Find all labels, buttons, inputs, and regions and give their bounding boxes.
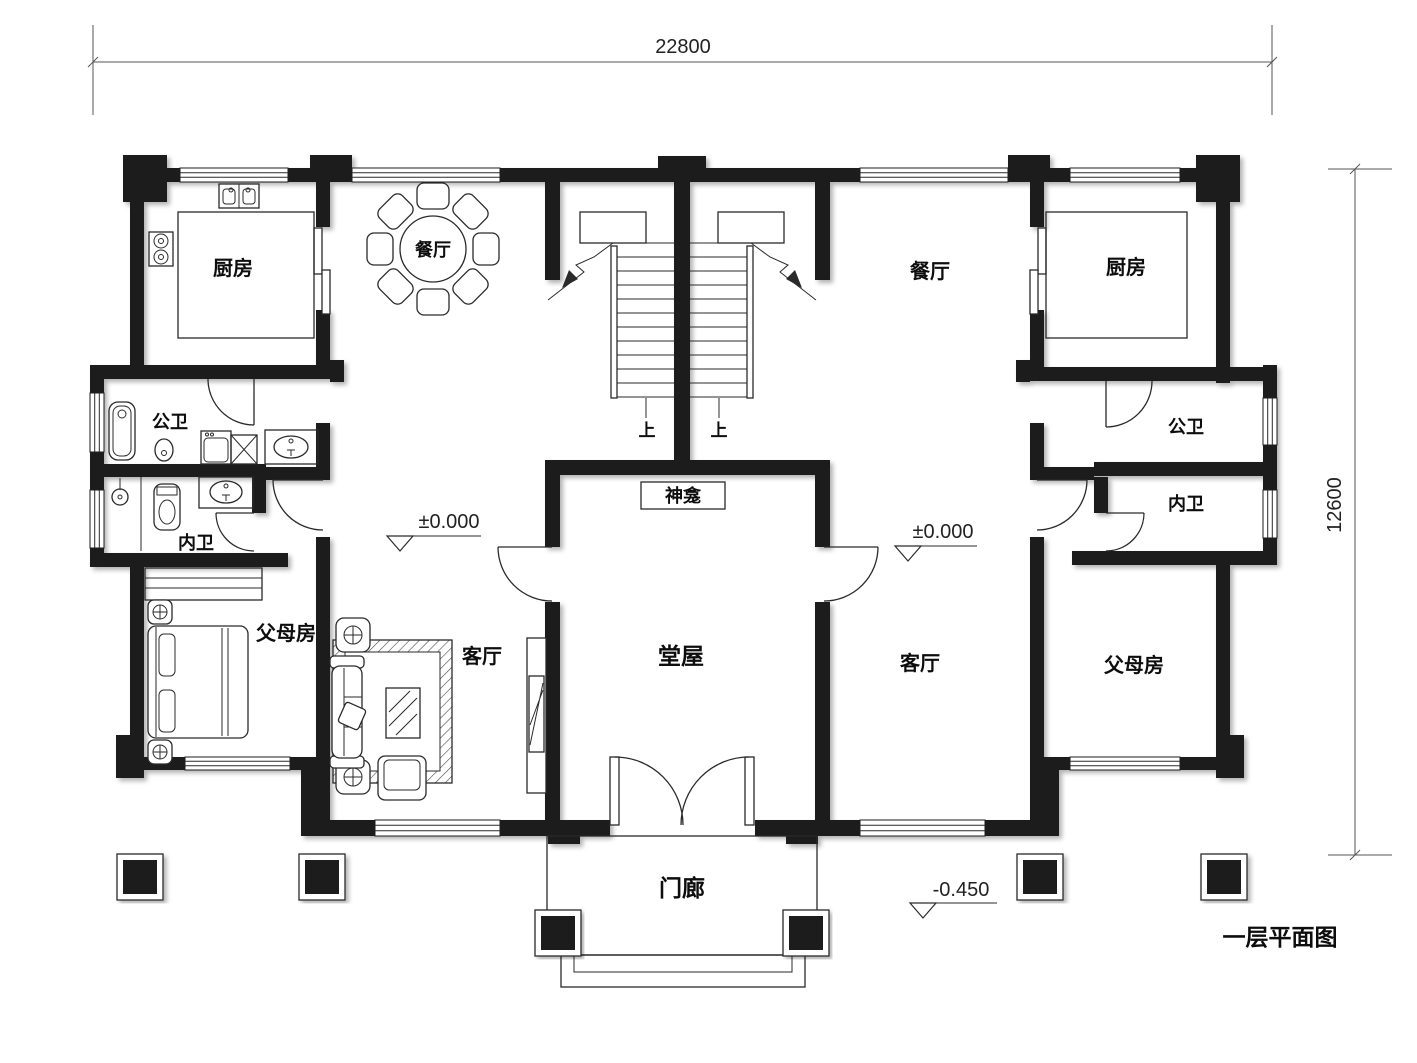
door-hall-right	[824, 547, 878, 601]
shower-icon	[231, 435, 257, 464]
room-label-parents-right: 父母房	[1103, 653, 1164, 677]
door-parents-left	[273, 480, 323, 530]
coffee-table-icon	[386, 688, 420, 738]
dimension-top: 22800	[88, 25, 1277, 115]
bed-icon	[148, 626, 248, 738]
sofa-icon	[330, 656, 367, 768]
door-bath-public-left	[208, 379, 254, 425]
staircase-right	[690, 212, 816, 418]
stove-icon	[149, 232, 173, 266]
staircase-left	[548, 212, 674, 418]
room-label-dining-left: 餐厅	[414, 239, 451, 260]
nightstand-icon	[148, 740, 172, 764]
side-table-icon	[336, 618, 370, 652]
door-hall-left	[498, 547, 552, 601]
door-sliding-kitchen-left	[314, 228, 330, 314]
room-label-living-right: 客厅	[899, 651, 940, 675]
dimension-right: 12600	[1324, 164, 1392, 860]
double-sink-icon	[219, 184, 259, 208]
elevation-porch-label: -0.450	[933, 879, 990, 901]
floor-plan-drawing: 22800 12600	[0, 0, 1417, 1063]
room-label-bath-public-left: 公卫	[152, 412, 188, 432]
washing-machine-icon	[201, 431, 231, 464]
porch	[535, 836, 829, 987]
elevation-right-label: ±0.000	[912, 521, 973, 543]
bath-public-left-fixtures	[109, 402, 318, 464]
door-parents-right	[1037, 480, 1087, 530]
pendant-lamp-icon	[112, 478, 128, 505]
door-bath-public-right	[1106, 381, 1152, 427]
floor-plan-canvas: 22800 12600	[0, 0, 1417, 1063]
door-sliding-kitchen-right	[1030, 228, 1046, 314]
door-entrance-double	[610, 757, 754, 825]
room-label-porch: 门廊	[659, 875, 705, 901]
elevation-left-label: ±0.000	[418, 511, 479, 533]
door-bath-private-right	[1106, 513, 1144, 551]
stairs-up-label-right: 上	[711, 421, 728, 440]
toilet-icon	[155, 439, 173, 461]
room-label-parents-left: 父母房	[255, 621, 316, 645]
elevation-marker-right: ±0.000	[895, 521, 977, 561]
room-label-kitchen-left: 厨房	[213, 256, 253, 280]
toilet-icon	[154, 484, 180, 530]
plan-title: 一层平面图	[1223, 924, 1338, 950]
door-bath-private-left	[216, 513, 254, 551]
armchair-icon	[378, 756, 426, 800]
porch-column	[535, 910, 581, 956]
stairs-up-label-left: 上	[639, 421, 656, 440]
nightstand-icon	[148, 600, 172, 624]
room-label-bath-private-right: 内卫	[1168, 493, 1204, 514]
parents-left-furniture	[145, 568, 262, 764]
room-label-bath-public-right: 公卫	[1168, 417, 1204, 437]
elevation-marker-porch: -0.450	[910, 879, 997, 918]
room-label-hall: 堂屋	[658, 643, 704, 669]
room-label-bath-private-left: 内卫	[178, 532, 214, 553]
porch-column	[783, 910, 829, 956]
porch-steps	[561, 955, 805, 987]
tv-cabinet-icon	[527, 638, 546, 793]
wardrobe-icon	[145, 568, 262, 600]
room-label-kitchen-right: 厨房	[1106, 255, 1146, 279]
dimension-right-label: 12600	[1324, 477, 1346, 533]
room-label-living-left: 客厅	[461, 644, 502, 668]
room-label-dining-right: 餐厅	[910, 259, 950, 283]
dimension-top-label: 22800	[655, 36, 711, 58]
vanity-sink-icon	[265, 430, 318, 464]
bathtub-icon	[109, 402, 135, 460]
sink-icon	[199, 477, 253, 508]
living-left-furniture	[330, 618, 546, 800]
elevation-marker-left: ±0.000	[387, 511, 481, 551]
room-label-shrine: 神龛	[665, 485, 702, 506]
